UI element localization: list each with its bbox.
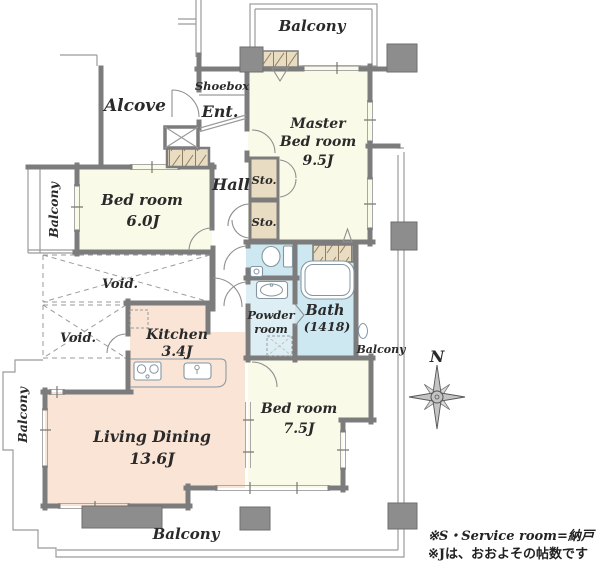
balcony-left-upper-label: Balcony bbox=[46, 181, 61, 238]
living-dining-label: Living Dining bbox=[92, 427, 211, 446]
entrance-label: Ent. bbox=[201, 102, 239, 121]
compass-rose: N bbox=[409, 347, 465, 429]
living-dining-size: 13.6J bbox=[129, 449, 176, 468]
closet-master-top bbox=[263, 51, 298, 67]
bath-label: Bath bbox=[305, 302, 345, 319]
balcony-bottom-label: Balcony bbox=[152, 525, 221, 543]
footnote-line-1: ※S・Service room=納戸 bbox=[428, 528, 597, 544]
bedroom6-label: Bed room bbox=[100, 191, 183, 209]
hand-basin-icon bbox=[251, 267, 263, 277]
bedroom6-size: 6.0J bbox=[126, 212, 160, 230]
alcove-label: Alcove bbox=[102, 96, 166, 116]
closet-entrance bbox=[167, 148, 209, 167]
kitchen-label: Kitchen bbox=[145, 327, 208, 343]
bedroom7-size: 7.5J bbox=[284, 421, 316, 437]
kitchen-size: 3.4J bbox=[162, 344, 194, 360]
bath-size: (1418) bbox=[304, 319, 351, 334]
shoebox-label: Shoebox bbox=[195, 79, 249, 93]
master-bedroom-label-2: Bed room bbox=[279, 134, 356, 150]
vanity-sink-icon bbox=[257, 282, 288, 299]
void-upper-label: Void. bbox=[102, 277, 138, 292]
powder-room-label-2: room bbox=[254, 322, 288, 336]
master-bedroom-label-1: Master bbox=[289, 116, 347, 132]
void-lower-label: Void. bbox=[60, 331, 96, 346]
master-bedroom-size: 9.5J bbox=[303, 153, 335, 169]
floor-plan: N Balcony Alcove Shoebox Ent. Master Bed… bbox=[0, 0, 600, 567]
bathtub-icon bbox=[301, 261, 354, 299]
kitchen-sink-icon bbox=[184, 363, 211, 379]
bedroom7-label: Bed room bbox=[260, 401, 337, 417]
balcony-right-label: Balcony bbox=[355, 343, 407, 356]
balcony-top-label: Balcony bbox=[278, 17, 347, 35]
footnotes: ※S・Service room=納戸 ※Jは、おおよその帖数です bbox=[428, 528, 597, 562]
powder-room-label-1: Powder bbox=[246, 308, 295, 322]
balcony-left-lower-label: Balcony bbox=[15, 386, 30, 443]
closet-bath-side bbox=[313, 245, 353, 262]
storage-upper-label: Sto. bbox=[251, 173, 276, 187]
footnote-line-2: ※Jは、おおよその帖数です bbox=[428, 546, 588, 562]
balcony-drain-icon bbox=[359, 324, 368, 339]
hall-label: Hall bbox=[211, 175, 250, 194]
gas-stove-icon bbox=[134, 362, 161, 380]
storage-lower-label: Sto. bbox=[251, 215, 276, 229]
compass-north-label: N bbox=[429, 347, 446, 366]
